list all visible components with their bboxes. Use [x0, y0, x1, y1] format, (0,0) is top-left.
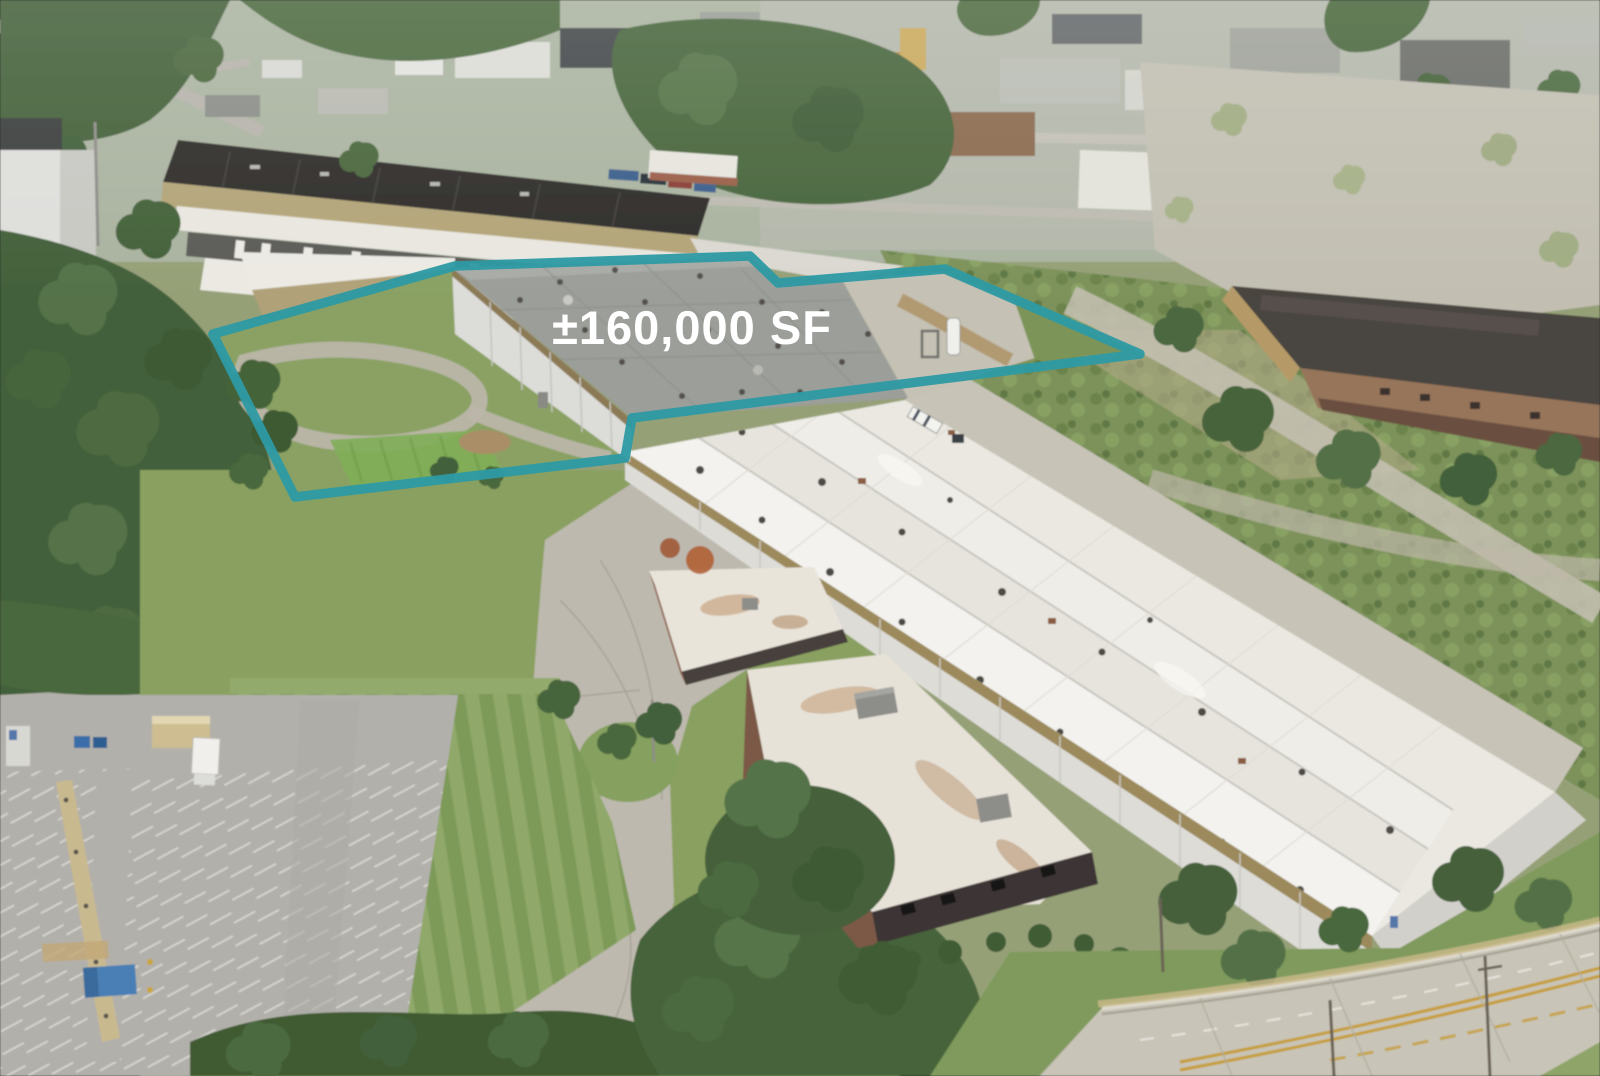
area-label: ±160,000 SF: [552, 301, 832, 354]
photo-layer: [0, 0, 1600, 1076]
aerial-scene: ±160,000 SF: [0, 0, 1600, 1076]
aerial-property-photo: ±160,000 SF: [0, 0, 1600, 1076]
